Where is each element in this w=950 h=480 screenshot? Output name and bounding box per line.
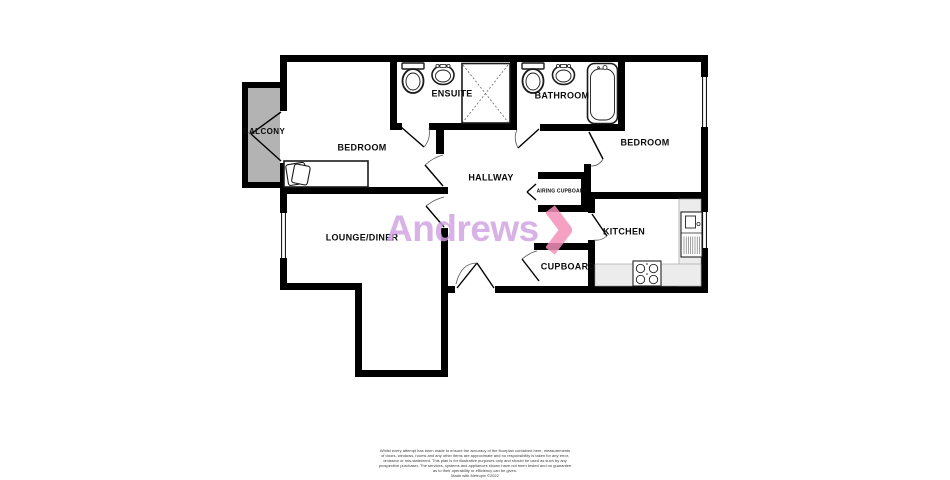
room-label-airing-cupboard: AIRING CUPBOARD (537, 190, 588, 195)
room-label-bedroom-2: BEDROOM (620, 139, 669, 148)
bathtub-icon (588, 64, 618, 124)
floorplan-page: BALCONY BEDROOM ENSUITE BATHROOM BEDROOM… (0, 0, 950, 480)
logo-wordmark: Andrews (386, 210, 539, 247)
kitchen-fixtures (595, 199, 702, 286)
room-label-cupboard: CUPBOARD (541, 263, 595, 272)
kitchen-sink-icon (681, 212, 702, 257)
bed-icon (284, 161, 368, 187)
room-label-hallway: HALLWAY (468, 174, 513, 183)
basin-icon (553, 64, 575, 84)
toilet-icon (402, 63, 424, 93)
hob-icon (633, 261, 661, 286)
toilet-icon (522, 63, 544, 93)
disclaimer-text: Whilst every attempt has been made to en… (0, 449, 950, 478)
room-label-kitchen: KITCHEN (603, 228, 645, 237)
andrews-logo: Andrews (386, 210, 572, 258)
room-label-balcony: BALCONY (243, 128, 285, 136)
disclaimer-credit: Made with Metropix ©2022 (0, 474, 950, 479)
room-label-ensuite: ENSUITE (431, 90, 472, 99)
chevron-icon (546, 202, 572, 258)
room-label-bedroom-1: BEDROOM (337, 144, 386, 153)
basin-icon (432, 64, 454, 84)
room-label-bathroom: BATHROOM (535, 92, 590, 101)
